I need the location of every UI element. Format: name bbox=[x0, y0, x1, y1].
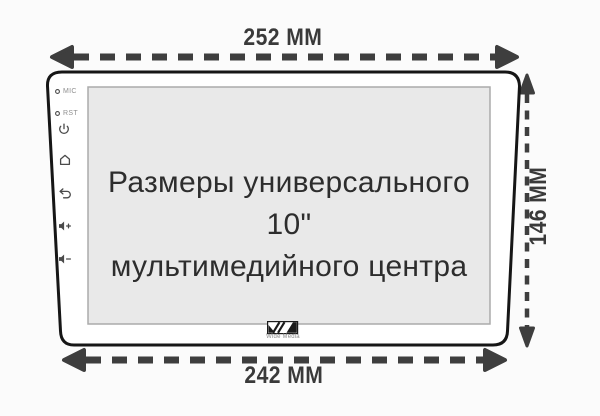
top-dimension-label: 252 ММ bbox=[216, 24, 350, 52]
rst-label: RST bbox=[63, 110, 78, 118]
bottom-dimension-label: 242 ММ bbox=[217, 362, 351, 390]
arrow-left-icon bbox=[64, 350, 84, 370]
arrow-right-icon bbox=[497, 47, 517, 67]
screen-caption-line1: Размеры универсального 10" bbox=[88, 162, 490, 246]
dimension-diagram: 252 ММ 242 ММ 146 ММ Размеры универсальн… bbox=[0, 0, 600, 416]
brand-label: Wide Media bbox=[237, 334, 329, 341]
height-dimension-label: 146 ММ bbox=[525, 139, 553, 273]
brand-logo-icon bbox=[268, 322, 298, 334]
mic-label: MIC bbox=[63, 88, 77, 96]
screen-caption-line2: мультимедийного центра bbox=[88, 246, 490, 288]
arrow-down-icon bbox=[521, 328, 534, 346]
screen-caption: Размеры универсального 10" мультимедийно… bbox=[88, 162, 490, 288]
arrow-up-icon bbox=[521, 75, 534, 93]
arrow-left-icon bbox=[52, 47, 72, 67]
arrow-right-icon bbox=[485, 350, 505, 370]
